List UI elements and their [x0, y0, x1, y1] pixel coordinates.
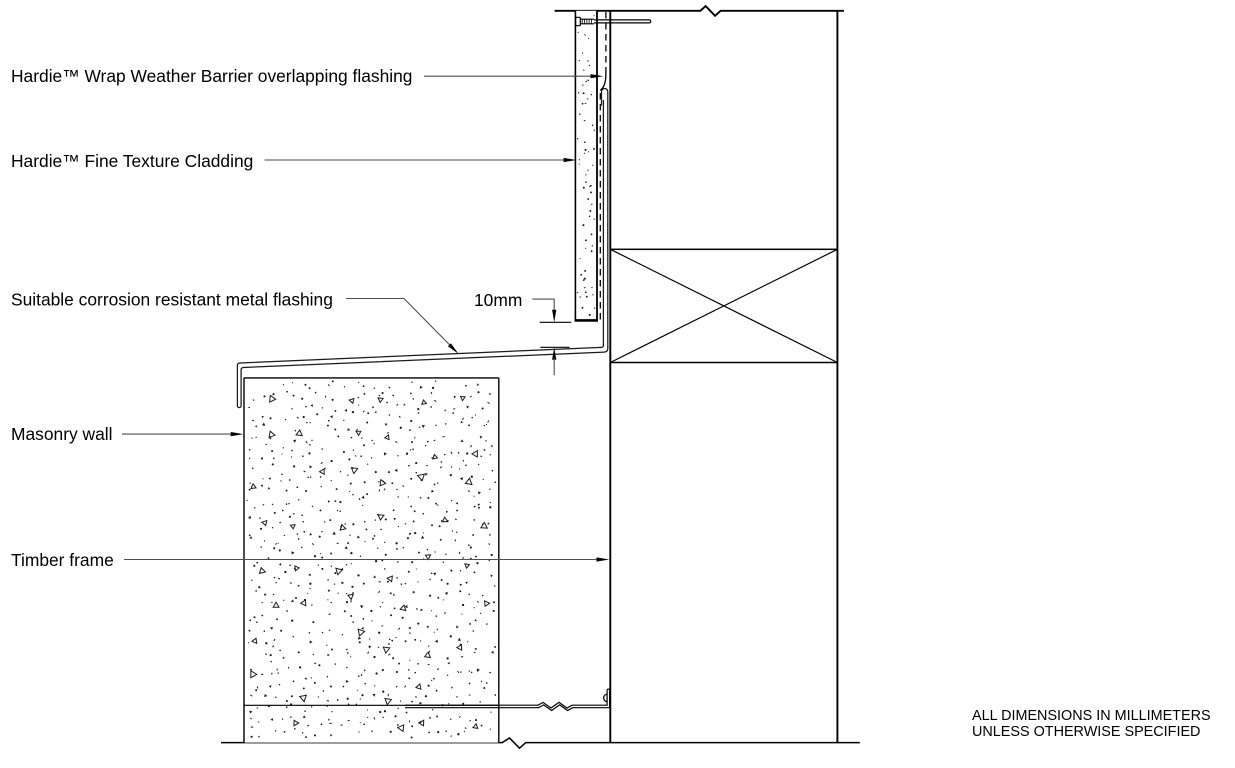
- svg-text:Hardie™ Wrap Weather Barrier o: Hardie™ Wrap Weather Barrier overlapping…: [11, 66, 412, 86]
- svg-text:Timber frame: Timber frame: [11, 550, 114, 570]
- svg-text:Hardie™ Fine Texture Cladding: Hardie™ Fine Texture Cladding: [11, 151, 253, 171]
- svg-text:Masonry wall: Masonry wall: [11, 424, 112, 444]
- svg-text:ALL DIMENSIONS IN MILLIMETERS: ALL DIMENSIONS IN MILLIMETERS: [972, 708, 1211, 724]
- svg-text:UNLESS OTHERWISE SPECIFIED: UNLESS OTHERWISE SPECIFIED: [972, 724, 1200, 740]
- svg-text:Suitable corrosion resistant m: Suitable corrosion resistant metal flash…: [11, 289, 333, 309]
- svg-text:10mm: 10mm: [474, 290, 522, 310]
